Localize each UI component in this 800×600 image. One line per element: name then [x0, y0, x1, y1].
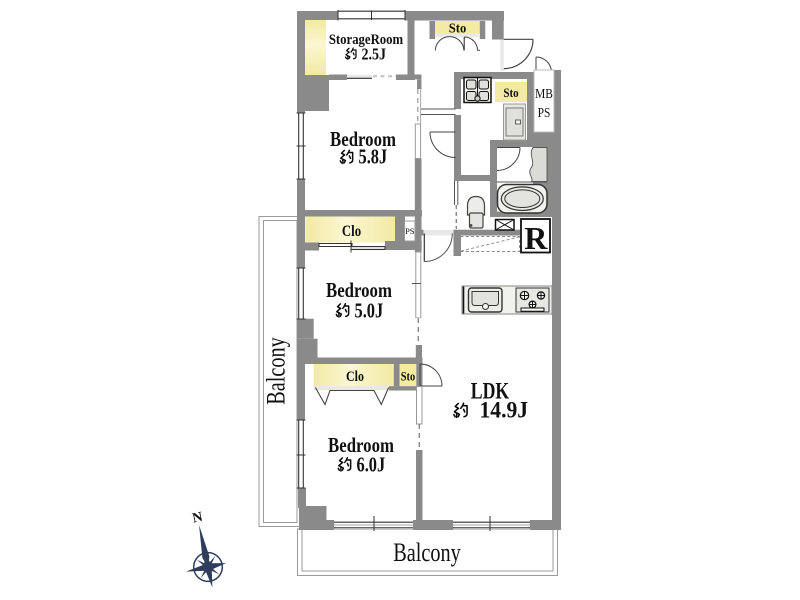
- svg-text:2.5J: 2.5J: [362, 45, 387, 63]
- svg-text:14.9J: 14.9J: [480, 397, 529, 423]
- svg-text:5.0J: 5.0J: [355, 300, 384, 323]
- svg-text:Clo: Clo: [342, 223, 361, 241]
- svg-text:Sto: Sto: [449, 20, 467, 36]
- svg-text:6.0J: 6.0J: [357, 454, 386, 477]
- svg-text:Clo: Clo: [346, 368, 364, 385]
- svg-text:5.8J: 5.8J: [359, 146, 388, 169]
- svg-text:PS: PS: [405, 226, 415, 236]
- svg-text:Balcony: Balcony: [262, 337, 291, 405]
- svg-text:PS: PS: [538, 105, 551, 120]
- svg-text:Balcony: Balcony: [393, 539, 461, 568]
- svg-text:MB: MB: [535, 86, 553, 101]
- svg-text:R: R: [524, 220, 548, 256]
- svg-text:Sto: Sto: [503, 85, 518, 100]
- svg-text:Sto: Sto: [401, 369, 416, 383]
